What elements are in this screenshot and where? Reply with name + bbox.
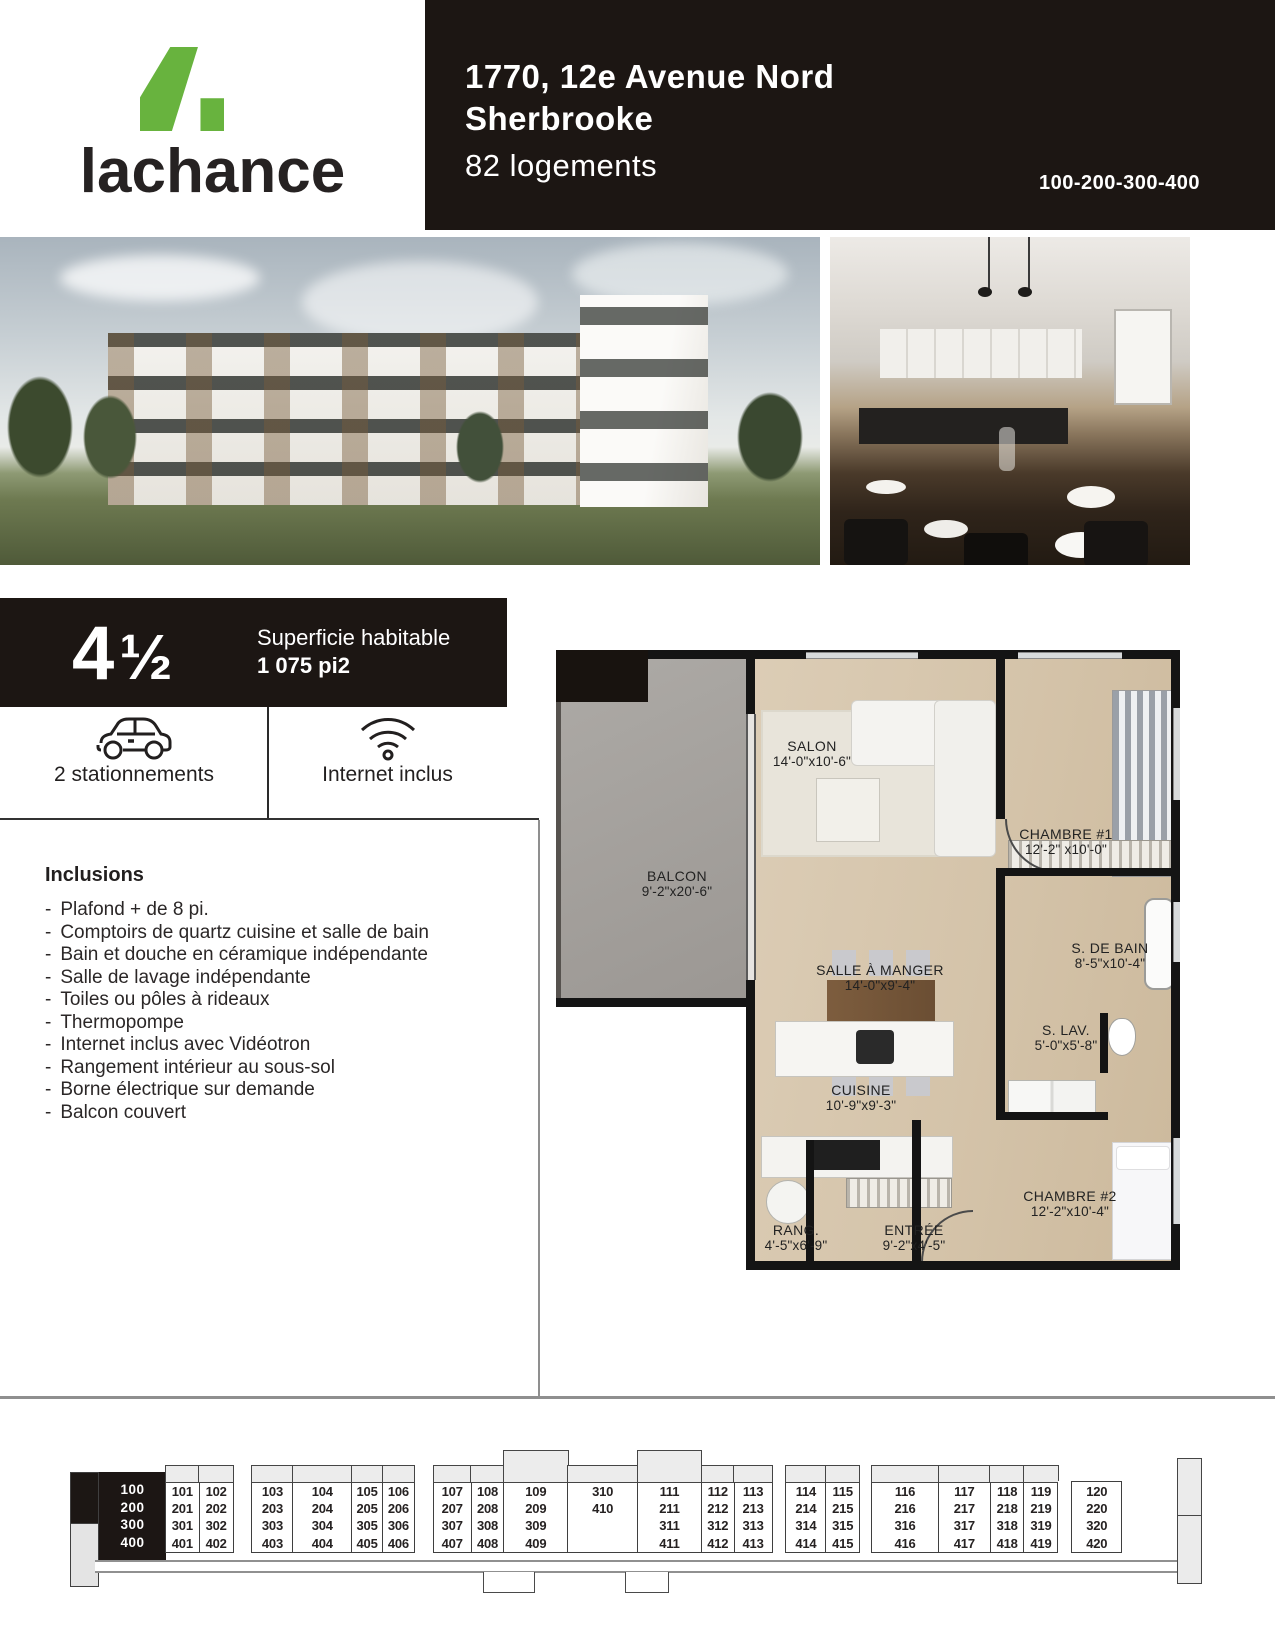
unit-number: 211 [638, 1500, 701, 1517]
unit-number: 109 [504, 1483, 567, 1500]
unit-column: 105205305405 [351, 1481, 383, 1553]
unit-number: 403 [252, 1535, 292, 1552]
inclusion-item: Balcon couvert [45, 1102, 515, 1125]
unit-number: 119 [1024, 1483, 1057, 1500]
unit-number: 410 [568, 1500, 637, 1517]
photo-kitchen-island [859, 408, 1068, 444]
unit-number: 203 [252, 1500, 292, 1517]
room-label-s-de-bain: S. DE BAIN 8'-5"x10'-4" [1048, 940, 1172, 971]
unit-number: 310 [568, 1483, 637, 1500]
room-label-chambre1: CHAMBRE #1 12'-2" x10'-0" [980, 826, 1152, 857]
plan-laundry-units [1008, 1080, 1096, 1116]
plan-water-heater [766, 1180, 810, 1224]
unit-number: 111 [638, 1483, 701, 1500]
unit-number: 212 [702, 1500, 734, 1517]
unit-number: 320 [1072, 1517, 1121, 1534]
unit-number: 303 [252, 1517, 292, 1534]
living-area-label: Superficie habitable [257, 624, 450, 652]
unit-number: 406 [383, 1535, 414, 1552]
balcony-strip [871, 1465, 939, 1483]
balcony-strip [733, 1465, 772, 1483]
diagram-floor-legend: 100200300400 [99, 1472, 166, 1560]
unit-type-badge: 4½ Superficie habitable 1 075 pi2 [0, 598, 507, 707]
unit-number: 202 [200, 1500, 233, 1517]
unit-column: 108208308408 [471, 1481, 505, 1553]
inclusions-section: Inclusions Plafond + de 8 pi.Comptoirs d… [45, 864, 515, 1124]
unit-number: 416 [872, 1535, 938, 1552]
unit-number: 317 [939, 1517, 990, 1534]
diagram-entrance-box [483, 1572, 535, 1593]
unit-number: 415 [826, 1535, 859, 1552]
inclusion-item: Internet inclus avec Vidéotron [45, 1034, 515, 1057]
plan-wall [996, 876, 1005, 1013]
balcony-strip [825, 1465, 860, 1483]
unit-number: 103 [252, 1483, 292, 1500]
unit-number: 401 [166, 1535, 199, 1552]
unit-column: 101201301401 [165, 1481, 200, 1553]
unit-number: 215 [826, 1500, 859, 1517]
diagram-right-stair [1177, 1458, 1202, 1517]
inclusion-item: Thermopompe [45, 1012, 515, 1035]
interior-kitchen-photo [830, 237, 1190, 565]
unit-column: 115215315415 [825, 1481, 860, 1553]
photo-pendant-bulbs [978, 287, 992, 297]
unit-number: 201 [166, 1500, 199, 1517]
car-icon [95, 715, 173, 761]
unit-number: 205 [352, 1500, 382, 1517]
balcony-strip [785, 1465, 826, 1483]
room-label-s-lav: S. LAV. 5'-0"x5'-8" [996, 1022, 1136, 1053]
unit-number: 309 [504, 1517, 567, 1534]
feature-parking: 2 stationnements [0, 707, 268, 820]
unit-number: 314 [786, 1517, 825, 1534]
unit-number: 219 [1024, 1500, 1057, 1517]
unit-number: 307 [434, 1517, 471, 1534]
plan-window [1173, 902, 1180, 962]
brand-wordmark: lachance [0, 136, 425, 207]
unit-number: 217 [939, 1500, 990, 1517]
unit-column: 112212312412 [701, 1481, 735, 1553]
unit-number: 319 [1024, 1517, 1057, 1534]
building-diagram: 100200300400 101201301401102202302402103… [0, 1396, 1275, 1650]
unit-number: 413 [735, 1535, 772, 1552]
room-label-chambre2: CHAMBRE #2 12'-2"x10'-4" [984, 1188, 1156, 1219]
unit-number: 105 [352, 1483, 382, 1500]
diagram-stair-bottom [70, 1523, 99, 1587]
plan-wall-block [556, 650, 648, 702]
balcony-strip [1023, 1465, 1058, 1483]
address-line-1: 1770, 12e Avenue Nord [465, 58, 834, 96]
unit-number: 311 [638, 1517, 701, 1534]
plan-window [1173, 1138, 1180, 1224]
plan-balcony-area [556, 654, 751, 1006]
unit-number: 209 [504, 1500, 567, 1517]
photo-kitchen-cabinets [880, 329, 1082, 378]
unit-column: 106206306406 [382, 1481, 415, 1553]
balcony-strip [567, 1465, 638, 1483]
unit-number: 316 [872, 1517, 938, 1534]
unit-number: 302 [200, 1517, 233, 1534]
unit-number: 101 [166, 1483, 199, 1500]
unit-number: 420 [1072, 1535, 1121, 1552]
diagram-right-stair [1177, 1515, 1202, 1584]
unit-column: 114214314414 [785, 1481, 826, 1553]
diagram-gap [415, 1481, 434, 1553]
floor-plan: BALCON 9'-2"x20'-6" SALON 14'-0"x10'-6" … [556, 650, 1180, 1270]
unit-column: 117217317417 [938, 1481, 991, 1553]
diagram-unit-columns: 1012013014011022023024021032033034031042… [166, 1481, 1122, 1553]
features-row: 2 stationnements Internet inclus [0, 707, 539, 820]
unit-number: 220 [1072, 1500, 1121, 1517]
plan-kitchen-sink [856, 1030, 894, 1064]
balcony-strip [470, 1465, 504, 1483]
unit-number: 417 [939, 1535, 990, 1552]
feature-internet: Internet inclus [268, 707, 507, 820]
plan-window [1018, 652, 1122, 659]
balcony-strip [292, 1465, 352, 1483]
brand-logo: lachance [0, 0, 425, 230]
inclusion-item: Toiles ou pôles à rideaux [45, 989, 515, 1012]
unit-number: 206 [383, 1500, 414, 1517]
address-line-2: Sherbrooke [465, 100, 653, 138]
unit-number: 204 [293, 1500, 351, 1517]
diagram-entrance-box [625, 1572, 669, 1593]
unit-number: 418 [991, 1535, 1024, 1552]
unit-number: 305 [352, 1517, 382, 1534]
unit-number: 113 [735, 1483, 772, 1500]
photo-chairs [844, 519, 908, 565]
unit-number: 412 [702, 1535, 734, 1552]
room-label-cuisine: CUISINE 10'-9"x9'-3" [781, 1082, 941, 1113]
plan-wall [746, 650, 755, 714]
unit-number: 117 [939, 1483, 990, 1500]
balcony-strip [637, 1450, 702, 1483]
plan-pillow [1116, 1146, 1170, 1170]
photo-trees [0, 237, 820, 565]
unit-number: 308 [472, 1517, 504, 1534]
unit-number: 214 [786, 1500, 825, 1517]
unit-number: 208 [472, 1500, 504, 1517]
unit-column: 119219319419 [1023, 1481, 1058, 1553]
legend-floor: 100 [99, 1481, 166, 1499]
photo-vase [999, 427, 1015, 471]
plan-coffee-table [816, 778, 880, 842]
unit-type-fraction: ½ [119, 621, 171, 693]
unit-type: 4½ [72, 610, 172, 697]
unit-number: 213 [735, 1500, 772, 1517]
balcony-strip [433, 1465, 472, 1483]
room-label-salle-a-manger: SALLE À MANGER 14'-0"x9'-4" [780, 962, 980, 993]
unit-number: 315 [826, 1517, 859, 1534]
unit-number: 207 [434, 1500, 471, 1517]
unit-number: 312 [702, 1517, 734, 1534]
unit-number: 102 [200, 1483, 233, 1500]
legend-floor: 300 [99, 1516, 166, 1534]
plan-wall [996, 868, 1180, 876]
room-label-rang: RANG. 4'-5"x6'-9" [734, 1222, 858, 1253]
building-exterior-photo [0, 237, 820, 565]
diagram-stair-top [70, 1472, 99, 1525]
unit-number: 409 [504, 1535, 567, 1552]
unit-number: 116 [872, 1483, 938, 1500]
room-label-salon: SALON 14'-0"x10'-6" [732, 738, 892, 769]
unit-number: 405 [352, 1535, 382, 1552]
room-label-entree: ENTRÉE 9'-2"x4'-5" [852, 1222, 976, 1253]
inclusion-item: Salle de lavage indépendante [45, 967, 515, 990]
unit-number: 408 [472, 1535, 504, 1552]
brand-logo-icon [140, 44, 224, 134]
unit-number: 115 [826, 1483, 859, 1500]
unit-number: 112 [702, 1483, 734, 1500]
plan-stove [814, 1140, 880, 1170]
plan-window [806, 652, 918, 659]
living-area: Superficie habitable 1 075 pi2 [257, 624, 450, 680]
balcony-strip [165, 1465, 200, 1483]
unit-number: 407 [434, 1535, 471, 1552]
balcony-strip [701, 1465, 735, 1483]
unit-number: 107 [434, 1483, 471, 1500]
room-label-balcon: BALCON 9'-2"x20'-6" [612, 868, 742, 899]
legend-floor: 200 [99, 1499, 166, 1517]
unit-series: 100-200-300-400 [1039, 172, 1200, 195]
unit-column: 118218318418 [990, 1481, 1025, 1553]
inclusion-item: Borne électrique sur demande [45, 1079, 515, 1102]
unit-number: 318 [991, 1517, 1024, 1534]
unit-number: 118 [991, 1483, 1024, 1500]
unit-column: 310410 [567, 1481, 638, 1553]
inclusion-item: Plafond + de 8 pi. [45, 899, 515, 922]
unit-column: 120220320420 [1071, 1481, 1122, 1553]
unit-number: 304 [293, 1517, 351, 1534]
unit-number: 419 [1024, 1535, 1057, 1552]
balcony-strip [382, 1465, 415, 1483]
unit-number: 108 [472, 1483, 504, 1500]
unit-column: 113213313413 [734, 1481, 773, 1553]
unit-column: 111211311411 [637, 1481, 702, 1553]
unit-column: 107207307407 [433, 1481, 472, 1553]
unit-number: 106 [383, 1483, 414, 1500]
diagram-gap [234, 1481, 253, 1553]
unit-number: 216 [872, 1500, 938, 1517]
unit-column: 104204304404 [292, 1481, 352, 1553]
column-divider-rule [538, 820, 540, 1398]
unit-number: 114 [786, 1483, 825, 1500]
balcony-strip [938, 1465, 991, 1483]
photo-plates [866, 480, 906, 494]
inclusions-title: Inclusions [45, 864, 515, 887]
unit-number: 104 [293, 1483, 351, 1500]
inclusions-list: Plafond + de 8 pi.Comptoirs de quartz cu… [45, 899, 515, 1124]
unit-column: 109209309409 [503, 1481, 568, 1553]
flyer-page: lachance 1770, 12e Avenue Nord Sherbrook… [0, 0, 1275, 1650]
wifi-icon [358, 715, 418, 761]
features-bottom-rule [0, 818, 539, 820]
inclusion-item: Bain et douche en céramique indépendante [45, 944, 515, 967]
unit-type-number: 4 [72, 611, 113, 696]
unit-number: 414 [786, 1535, 825, 1552]
unit-number: 301 [166, 1517, 199, 1534]
unit-number: 120 [1072, 1483, 1121, 1500]
header-banner: 1770, 12e Avenue Nord Sherbrooke 82 loge… [425, 0, 1275, 230]
living-area-value: 1 075 pi2 [257, 652, 450, 680]
unit-number: 313 [735, 1517, 772, 1534]
unit-number: 411 [638, 1535, 701, 1552]
unit-column: 102202302402 [199, 1481, 234, 1553]
unit-number: 404 [293, 1535, 351, 1552]
unit-column: 103203303403 [251, 1481, 293, 1553]
plan-wall [556, 998, 752, 1007]
balcony-strip [989, 1465, 1024, 1483]
units-count: 82 logements [465, 148, 657, 184]
balcony-strip [198, 1465, 233, 1483]
plan-entry-closet [846, 1178, 952, 1208]
balcony-strip [251, 1465, 293, 1483]
unit-number: 306 [383, 1517, 414, 1534]
balcony-strip [351, 1465, 383, 1483]
unit-column: 116216316416 [871, 1481, 939, 1553]
unit-number: 402 [200, 1535, 233, 1552]
plan-wall [996, 659, 1005, 819]
balcony-strip [503, 1450, 568, 1483]
inclusion-item: Rangement intérieur au sous-sol [45, 1057, 515, 1080]
unit-number: 218 [991, 1500, 1024, 1517]
photo-pendant-lights [988, 237, 990, 289]
feature-internet-label: Internet inclus [268, 763, 507, 787]
feature-parking-label: 2 stationnements [0, 763, 268, 787]
photo-interior-window [1114, 309, 1172, 405]
plan-wall [996, 1112, 1108, 1120]
legend-floor: 400 [99, 1534, 166, 1552]
inclusion-item: Comptoirs de quartz cuisine et salle de … [45, 922, 515, 945]
plan-window [1173, 708, 1180, 800]
